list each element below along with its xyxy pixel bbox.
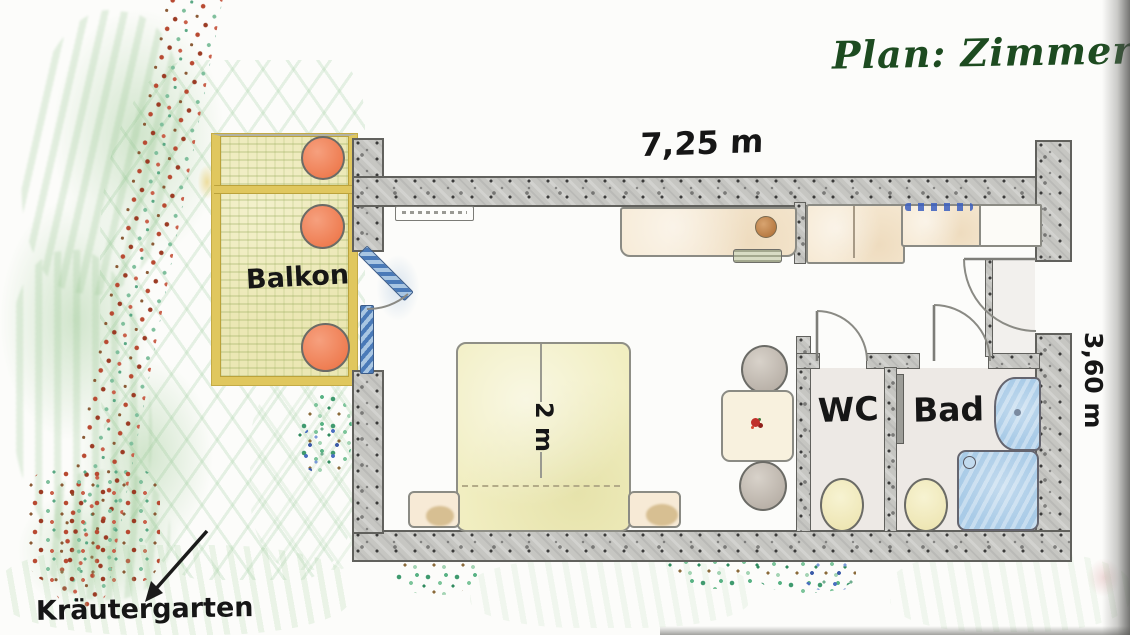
herb-garden-arrow-line xyxy=(154,531,207,591)
plan-title: Plan: Zimmer xyxy=(832,27,1130,77)
dimension-top-label: 7,25 m xyxy=(639,122,764,164)
wc-door-arc xyxy=(817,311,867,361)
page-edge-shadow-right xyxy=(1102,0,1130,635)
floor-plan-zimmer: Balkon 2 m xyxy=(0,0,1130,635)
wc-label: WC xyxy=(817,389,879,430)
entrance-door-arc xyxy=(964,259,1036,331)
herb-garden-label: Kräutergarten xyxy=(36,592,254,627)
balcony-door-arc xyxy=(367,294,408,309)
bathroom-label: Bad xyxy=(913,389,985,429)
door-swing-overlay xyxy=(0,0,1130,635)
bathroom-door-arc xyxy=(934,305,990,361)
page-edge-shadow-bottom xyxy=(660,626,1130,635)
